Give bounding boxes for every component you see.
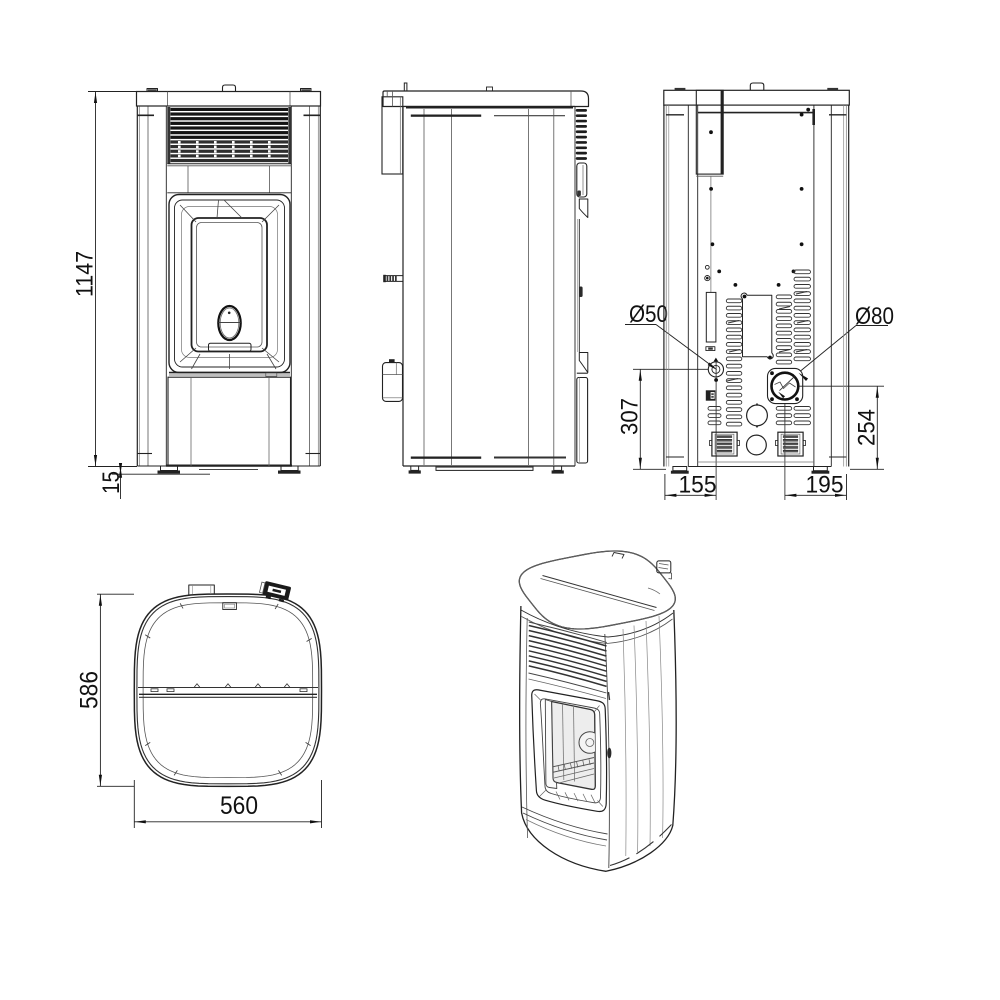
svg-text:15: 15 [98,471,125,494]
svg-text:1147: 1147 [72,251,99,297]
svg-text:254: 254 [854,409,881,446]
svg-text:560: 560 [220,792,258,820]
svg-text:307: 307 [617,398,644,435]
svg-text:586: 586 [76,671,104,709]
svg-text:155: 155 [679,472,717,499]
svg-text:195: 195 [806,472,844,499]
svg-text:Ø80: Ø80 [855,303,894,330]
svg-text:Ø50: Ø50 [629,301,668,328]
